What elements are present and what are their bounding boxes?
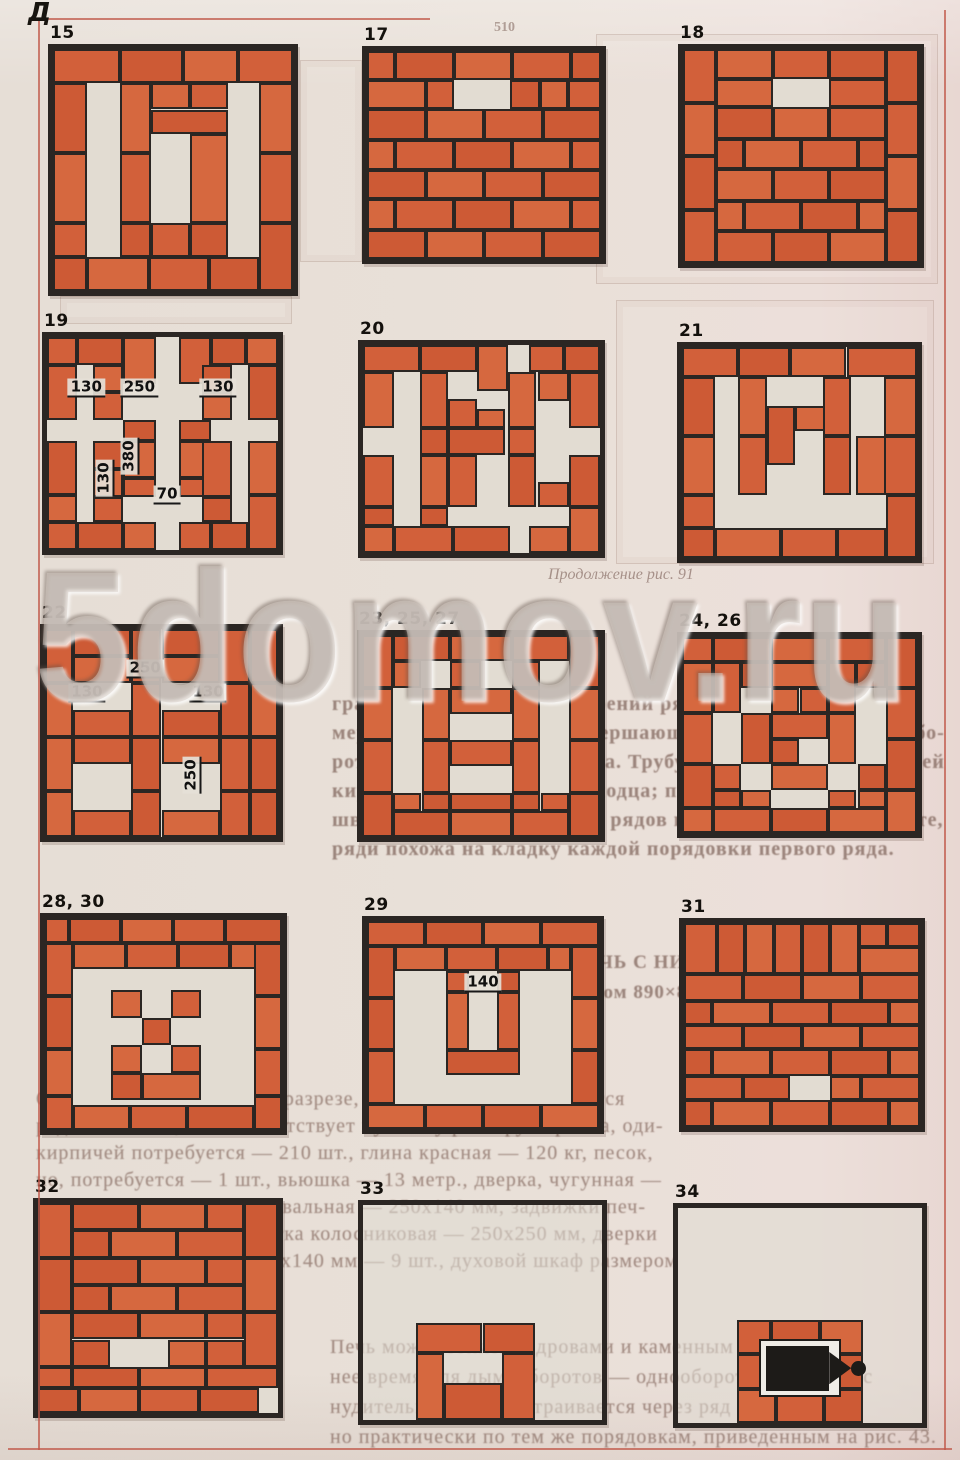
brick: [886, 739, 917, 790]
brick: [367, 51, 395, 80]
dimension-label: 130: [199, 379, 236, 398]
brick: [483, 921, 541, 946]
brick: [450, 740, 512, 766]
brick: [47, 495, 77, 523]
brick: [889, 1049, 920, 1076]
brick: [682, 764, 713, 807]
brick: [446, 946, 497, 971]
brick: [508, 372, 536, 428]
brick: [802, 1025, 861, 1049]
brick: [426, 109, 485, 140]
brick: [244, 1203, 278, 1258]
brick: [123, 522, 155, 550]
brick: [829, 231, 886, 263]
brick: [209, 257, 259, 291]
brick: [713, 637, 772, 662]
brick: [47, 337, 77, 365]
brick: [362, 635, 393, 688]
diagram-label-15: 15: [50, 23, 75, 43]
brick: [211, 337, 246, 365]
brick: [244, 1258, 278, 1313]
brick: [367, 946, 395, 998]
brick: [111, 990, 142, 1018]
brick: [72, 1258, 139, 1285]
course-diagram-15: [48, 44, 298, 296]
brick: [781, 528, 837, 558]
brick: [53, 153, 87, 223]
brick: [367, 199, 395, 230]
brick: [683, 156, 716, 210]
brick: [571, 51, 601, 80]
dimension-label: 130: [189, 684, 226, 703]
brick: [682, 436, 715, 495]
brick: [569, 372, 600, 428]
brick: [744, 139, 801, 169]
brick: [512, 635, 569, 661]
brick: [543, 170, 602, 199]
brick: [830, 1100, 889, 1127]
brick: [139, 1258, 206, 1285]
brick: [682, 377, 715, 436]
brick: [162, 656, 220, 683]
brick: [38, 1388, 79, 1413]
diagram-label-19: 19: [44, 311, 69, 331]
brick: [177, 1230, 244, 1257]
brick: [771, 662, 827, 687]
brick: [73, 1105, 130, 1130]
brick: [684, 1025, 743, 1049]
brick: [684, 974, 743, 1001]
brick: [362, 688, 393, 741]
brick: [773, 107, 830, 139]
brick: [571, 998, 599, 1050]
brick: [111, 1073, 142, 1101]
brick: [564, 345, 600, 372]
brick: [771, 688, 799, 713]
brick: [771, 1049, 830, 1076]
brick: [448, 455, 476, 507]
brick: [450, 635, 512, 661]
bleed-number: 510: [494, 20, 515, 36]
brick: [79, 1388, 139, 1413]
brick: [856, 436, 887, 495]
brick: [683, 103, 716, 157]
brick: [73, 943, 125, 968]
brick: [123, 478, 155, 497]
brick: [713, 790, 741, 808]
brick: [120, 153, 151, 223]
brick: [802, 974, 861, 1001]
diagram-label-23-25-27: 23, 25, 27: [359, 609, 460, 629]
diagram-label-21: 21: [679, 321, 704, 341]
brick: [362, 740, 393, 793]
brick: [508, 428, 536, 455]
brick: [367, 230, 426, 259]
brick: [771, 739, 799, 764]
brick: [130, 1105, 187, 1130]
brick: [801, 201, 858, 231]
brick: [771, 1100, 830, 1127]
bleed-drawing-rect: [60, 296, 292, 324]
course-diagram-33: [358, 1200, 607, 1425]
brick: [483, 1323, 536, 1353]
brick: [717, 923, 745, 974]
brick: [199, 1388, 259, 1413]
brick: [45, 629, 73, 683]
brick: [512, 661, 541, 687]
brick: [190, 223, 228, 257]
brick: [529, 345, 565, 372]
brick: [713, 662, 741, 713]
brick: [512, 140, 571, 169]
brick: [847, 347, 918, 377]
brick: [454, 199, 513, 230]
brick: [454, 140, 513, 169]
brick: [774, 923, 802, 974]
brick: [886, 49, 919, 103]
brick: [682, 495, 715, 529]
brick: [512, 740, 541, 793]
brick: [73, 656, 131, 683]
brick: [248, 365, 278, 420]
brick: [829, 49, 886, 79]
brick: [450, 793, 512, 811]
brick: [682, 713, 713, 764]
brick: [121, 918, 173, 943]
brick: [858, 764, 886, 789]
brick: [53, 83, 87, 153]
brick: [420, 372, 448, 428]
brick: [802, 923, 830, 974]
damper-knob-icon: [851, 1361, 866, 1376]
brick: [712, 1100, 771, 1127]
brick: [73, 710, 131, 737]
brick: [450, 688, 512, 714]
brick: [393, 635, 450, 661]
brick: [363, 526, 394, 553]
brick: [202, 497, 232, 523]
brick: [259, 223, 293, 291]
brick: [538, 372, 569, 401]
brick: [187, 1105, 253, 1130]
brick: [420, 507, 448, 526]
damper-slide-icon: [766, 1346, 829, 1391]
brick: [446, 992, 469, 1050]
brick: [93, 497, 123, 523]
page-frame-left: [38, 18, 40, 1450]
brick: [450, 811, 512, 837]
brick: [250, 737, 278, 791]
page-frame-right: [944, 10, 946, 1450]
brick: [72, 1367, 139, 1388]
dimension-label: 250: [127, 659, 164, 678]
brick: [395, 946, 446, 971]
brick: [120, 223, 151, 257]
brick: [171, 1045, 202, 1073]
brick: [220, 791, 250, 837]
course-diagram-21: [677, 342, 922, 563]
brick: [454, 51, 513, 80]
brick: [886, 637, 917, 688]
brick: [211, 522, 248, 550]
brick: [38, 1312, 72, 1367]
diagram-label-29: 29: [364, 895, 389, 915]
brick: [151, 83, 189, 110]
brick: [858, 201, 886, 231]
brick: [45, 943, 73, 996]
brick: [571, 140, 601, 169]
brick: [715, 528, 781, 558]
brick: [139, 1312, 206, 1339]
brick: [684, 1001, 712, 1025]
brick: [131, 791, 161, 837]
brick: [363, 507, 394, 526]
brick: [139, 1203, 206, 1230]
brick: [858, 139, 886, 169]
brick: [484, 170, 543, 199]
brick: [861, 1025, 920, 1049]
brick: [741, 713, 772, 764]
brick: [149, 257, 209, 291]
brick: [367, 109, 426, 140]
brick: [830, 1001, 889, 1025]
brick: [395, 199, 454, 230]
brick: [716, 231, 773, 263]
brick: [126, 943, 178, 968]
brick: [179, 522, 211, 550]
brick: [250, 629, 278, 683]
brick: [246, 337, 278, 365]
brick: [448, 428, 505, 455]
brick: [886, 156, 919, 210]
brick: [682, 662, 713, 713]
brick: [110, 1230, 177, 1257]
brick: [72, 1285, 110, 1312]
brick: [254, 996, 282, 1049]
brick: [206, 1340, 244, 1367]
brick: [741, 790, 772, 808]
brick: [220, 629, 250, 683]
brick: [111, 1045, 142, 1073]
brick: [571, 199, 601, 230]
diagram-label-18: 18: [680, 23, 705, 43]
brick: [367, 1050, 395, 1104]
brick: [828, 790, 856, 808]
brick: [543, 230, 602, 259]
brick: [248, 495, 278, 550]
brick: [450, 661, 481, 687]
brick: [206, 1367, 278, 1388]
brick: [512, 688, 541, 741]
brick: [45, 918, 69, 943]
brick: [716, 201, 744, 231]
brick: [53, 257, 87, 291]
dimension-label: 70: [154, 485, 181, 504]
brick: [738, 347, 790, 377]
brick: [367, 80, 426, 109]
brick: [453, 526, 510, 553]
brick: [886, 688, 917, 739]
course-diagram-31: [679, 918, 925, 1132]
bleed-text-line: но, потребуется — 1 шт., вьюшка — 13 мет…: [36, 1167, 948, 1194]
brick: [886, 790, 917, 833]
brick: [541, 921, 599, 946]
brick: [743, 1076, 790, 1100]
brick: [367, 1104, 425, 1129]
brick: [53, 49, 120, 83]
brick: [716, 49, 773, 79]
brick: [206, 1258, 244, 1285]
brick: [162, 810, 220, 837]
brick: [771, 637, 827, 662]
brick: [248, 441, 278, 494]
brick: [569, 688, 600, 741]
section-letter: Д: [28, 0, 51, 28]
brick: [744, 201, 801, 231]
brick: [512, 811, 569, 837]
dimension-label: 140: [464, 974, 501, 993]
brick: [767, 406, 795, 465]
brick: [828, 637, 887, 662]
brick: [206, 1203, 244, 1230]
brick: [238, 49, 293, 83]
brick: [422, 688, 451, 741]
brick: [886, 103, 919, 157]
course-diagram-28-30: [40, 913, 287, 1135]
brick: [773, 169, 830, 201]
brick: [541, 1104, 599, 1129]
bleed-drawing-rect: [300, 60, 362, 262]
brick: [151, 223, 189, 257]
brick: [829, 79, 886, 107]
brick: [830, 923, 858, 974]
brick: [420, 345, 477, 372]
brick: [477, 345, 508, 391]
brick: [887, 923, 920, 947]
diagram-label-33: 33: [360, 1179, 385, 1199]
brick: [716, 139, 744, 169]
brick: [773, 231, 830, 263]
brick: [448, 399, 476, 428]
brick: [69, 918, 121, 943]
brick: [712, 1049, 771, 1076]
brick: [178, 943, 230, 968]
brick: [684, 1049, 712, 1076]
brick: [363, 372, 394, 428]
brick: [254, 1049, 282, 1096]
brick: [713, 808, 772, 833]
brick: [367, 170, 426, 199]
brick: [250, 791, 278, 837]
brick: [483, 1104, 541, 1129]
brick: [497, 992, 520, 1050]
brick: [684, 1100, 712, 1127]
brick: [202, 441, 232, 496]
brick: [569, 635, 600, 688]
brick: [568, 80, 601, 109]
brick: [771, 1001, 830, 1025]
dimension-label: 130: [68, 379, 105, 398]
brick: [712, 1001, 771, 1025]
brick: [425, 921, 483, 946]
brick: [830, 1076, 861, 1100]
brick: [72, 1340, 110, 1367]
brick: [569, 793, 600, 837]
brick: [571, 946, 599, 998]
brick: [538, 482, 569, 507]
brick: [420, 428, 448, 455]
brick: [38, 1203, 72, 1258]
brick: [173, 918, 225, 943]
brick: [45, 791, 73, 837]
brick: [47, 441, 77, 494]
brick: [683, 210, 716, 264]
brick: [829, 169, 886, 201]
brick: [477, 409, 505, 428]
dimension-label: 380: [121, 438, 140, 475]
diagram-label-28-30: 28, 30: [42, 892, 105, 912]
brick: [508, 455, 536, 507]
diagram-label-24-26: 24, 26: [679, 611, 742, 631]
brick: [569, 507, 600, 553]
brick: [225, 918, 282, 943]
brick: [139, 1367, 206, 1388]
brick: [110, 1285, 177, 1312]
brick: [716, 107, 773, 139]
brick: [713, 764, 741, 789]
course-diagram-34: [673, 1203, 927, 1428]
brick: [682, 347, 738, 377]
brick: [73, 629, 131, 656]
brick: [47, 522, 77, 550]
brick: [220, 737, 250, 791]
brick: [771, 713, 827, 738]
course-diagram-23-25-27: [357, 630, 605, 842]
brick: [367, 998, 395, 1050]
brick: [682, 528, 715, 558]
course-diagram-20: [358, 340, 605, 558]
brick: [828, 808, 887, 833]
dimension-label: 250: [182, 756, 201, 793]
brick: [420, 455, 448, 507]
brick: [38, 1367, 72, 1388]
brick: [416, 1323, 483, 1353]
course-diagram-17: [362, 46, 606, 264]
brick: [120, 49, 182, 83]
brick: [738, 377, 766, 436]
course-diagram-32: [33, 1198, 283, 1418]
brick: [120, 83, 151, 153]
brick: [884, 436, 917, 495]
brick: [859, 947, 920, 974]
brick: [856, 662, 887, 687]
brick: [743, 974, 802, 1001]
brick: [45, 737, 73, 791]
scanned-book-page: { "page": { "corner_letter": "Д", "water…: [0, 0, 960, 1460]
brick: [512, 793, 541, 811]
brick: [743, 1025, 802, 1049]
brick: [168, 1340, 206, 1367]
course-diagram-24-26: [677, 632, 922, 838]
diagram-label-17: 17: [364, 25, 389, 45]
brick: [571, 1050, 599, 1104]
brick: [830, 1049, 889, 1076]
brick: [151, 110, 228, 134]
brick: [548, 946, 571, 971]
brick: [142, 1073, 201, 1101]
course-diagram-19: 13025013038070130: [42, 332, 283, 555]
brick: [569, 740, 600, 793]
